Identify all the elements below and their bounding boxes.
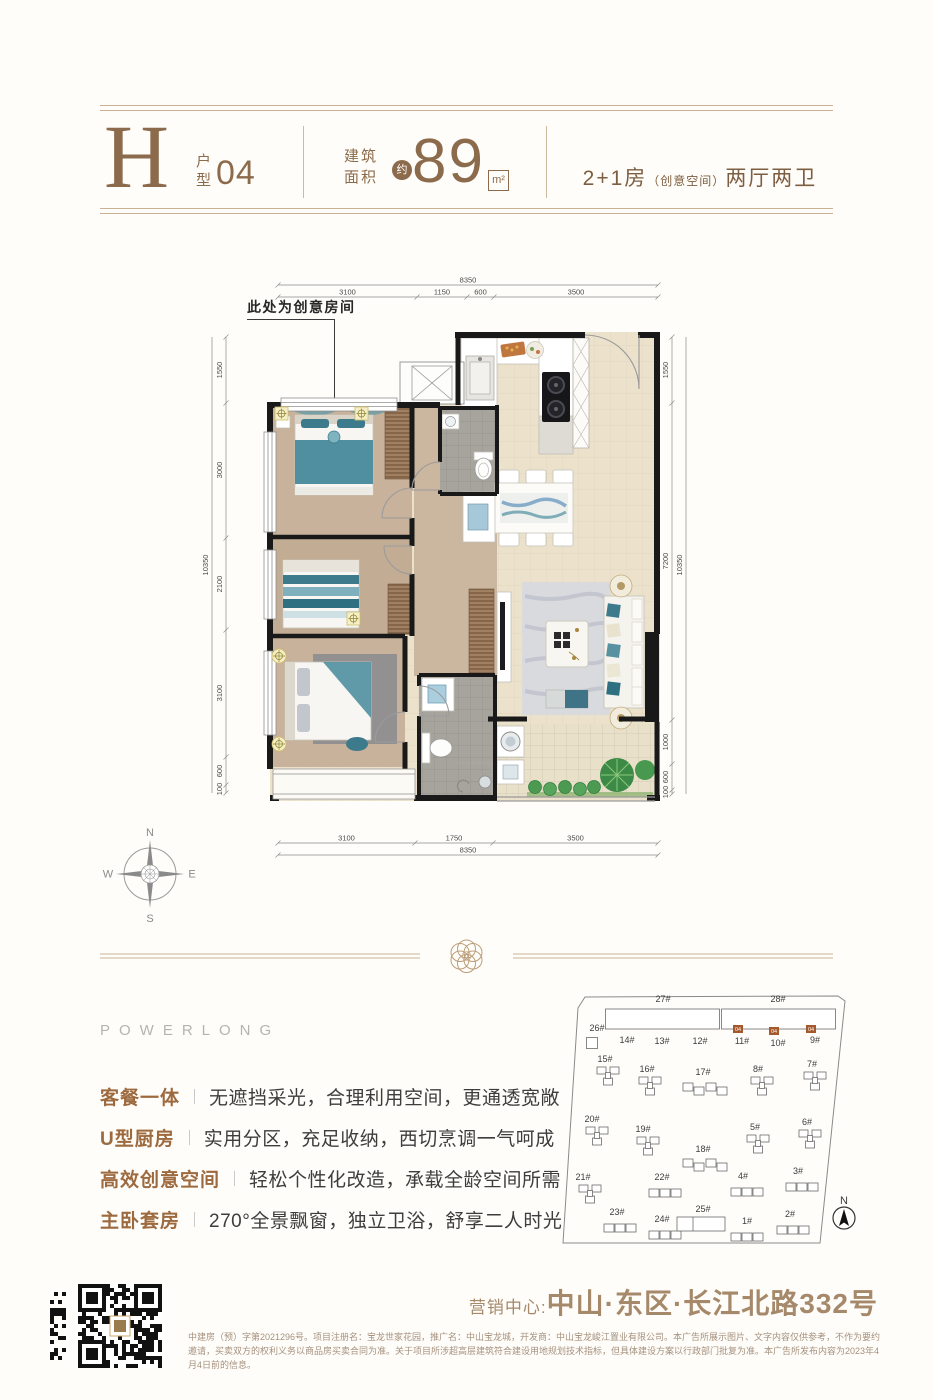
layout-paren: （创意空间） — [647, 174, 725, 188]
siteplan-building-label: 28# — [770, 994, 785, 1004]
siteplan-building-label: 8# — [753, 1064, 763, 1074]
creative-room-wardrobe — [385, 407, 410, 479]
svg-text:3100: 3100 — [339, 288, 356, 297]
siteplan-building — [751, 1077, 773, 1095]
siteplan-building-label: 7# — [807, 1059, 817, 1069]
svg-text:1000: 1000 — [661, 734, 670, 751]
svg-text:W: W — [103, 869, 114, 881]
svg-text:N: N — [840, 1195, 848, 1207]
feature-divider — [194, 1212, 195, 1227]
svg-text:1550: 1550 — [661, 362, 670, 379]
feature-list: 客餐一体 无遮挡采光，合理利用空间，更通透宽敞 U型厨房 实用分区，充足收纳，西… — [100, 1076, 562, 1240]
floorplan-drawing: 8350 3100 1150 600 3500 3100 1750 3500 8… — [195, 266, 765, 876]
svg-text:8350: 8350 — [460, 276, 477, 285]
ornament-divider-icon — [100, 936, 833, 980]
marketing-line: 营销中心: 中山·东区·长江北路332号 — [430, 1282, 878, 1322]
siteplan-building-label: 10# — [770, 1038, 785, 1048]
svg-text:1550: 1550 — [215, 362, 224, 379]
unit-type-stack-top: 户 — [196, 152, 212, 171]
siteplan-building — [683, 1159, 727, 1171]
area-label-bottom: 面积 — [344, 167, 378, 188]
siteplan-building — [777, 1226, 809, 1234]
svg-text:7200: 7200 — [661, 553, 670, 570]
siteplan-building-label: 6# — [802, 1117, 812, 1127]
layout-rooms: 2+1房 — [583, 167, 648, 190]
feature-desc: 270°全景飘窗，独立卫浴，舒享二人时光 — [209, 1206, 562, 1233]
svg-text:600: 600 — [474, 288, 487, 297]
feature-desc: 轻松个性化改造，承载全龄空间所需 — [249, 1165, 561, 1192]
header-rule-top — [100, 105, 833, 111]
svg-text:1750: 1750 — [446, 834, 463, 843]
siteplan-building-label: 23# — [609, 1207, 624, 1217]
feature-desc: 无遮挡采光，合理利用空间，更通透宽敞 — [209, 1083, 560, 1110]
svg-text:04: 04 — [735, 1027, 741, 1033]
svg-text:100: 100 — [661, 786, 670, 799]
area-value: 89 — [412, 126, 485, 197]
siteplan-building-label: 14# — [619, 1035, 634, 1045]
siteplan-building-label: 18# — [695, 1144, 710, 1154]
svg-text:10350: 10350 — [201, 555, 210, 576]
siteplan-building-label: 19# — [635, 1124, 650, 1134]
unit-type-stack: 户 型 — [196, 152, 212, 190]
siteplan-building — [649, 1189, 681, 1197]
disclaimer-text: 中建房（预）字第2021296号。项目注册名：宝龙世家花园，推广名：中山宝龙城，… — [188, 1331, 883, 1373]
north-arrow-icon: N — [833, 1195, 855, 1229]
siteplan-building-label: 1# — [742, 1216, 752, 1226]
svg-text:10350: 10350 — [675, 555, 684, 576]
siteplan-building — [649, 1231, 681, 1239]
svg-text:3100: 3100 — [215, 685, 224, 702]
tv-cabinet — [497, 592, 511, 682]
header-divider-2 — [546, 126, 547, 198]
siteplan-building-label: 13# — [654, 1036, 669, 1046]
svg-text:E: E — [188, 869, 195, 881]
area-label-top: 建筑 — [344, 146, 378, 167]
siteplan-building — [683, 1083, 727, 1095]
svg-text:3500: 3500 — [567, 834, 584, 843]
svg-text:2100: 2100 — [215, 576, 224, 593]
unit-type-letter: H — [104, 116, 169, 200]
dining-sideboard — [463, 492, 495, 542]
floorplan-poster-page: H 户 型 04 建筑 面积 约 89 m² 2+1房（创意空间）两厅两卫 此处… — [0, 0, 933, 1400]
siteplan-building — [731, 1188, 763, 1196]
layout-description: 2+1房（创意空间）两厅两卫 — [560, 162, 840, 192]
qr-code — [78, 1284, 162, 1368]
siteplan-building-label: 25# — [695, 1204, 710, 1214]
siteplan-building — [606, 1009, 720, 1029]
svg-text:3100: 3100 — [338, 834, 355, 843]
svg-text:600: 600 — [215, 765, 224, 778]
siteplan-map: 27#28#26#14#13#12#11#10#9#15#16#17#8#7#2… — [545, 985, 880, 1260]
feature-label: 主卧套房 — [100, 1206, 180, 1233]
svg-text:S: S — [146, 913, 153, 925]
feature-divider — [194, 1089, 195, 1104]
svg-text:N: N — [146, 827, 154, 839]
siteplan-building-label: 27# — [655, 994, 670, 1004]
hallway-wardrobe — [469, 589, 494, 675]
coffee-table — [546, 621, 588, 667]
siteplan-building-label: 5# — [750, 1122, 760, 1132]
dining-set — [495, 470, 573, 546]
brand-logo-text: POWERLONG — [100, 1022, 280, 1039]
feature-label: U型厨房 — [100, 1124, 175, 1151]
siteplan-building-label: 26# — [589, 1023, 604, 1033]
feature-label: 高效创意空间 — [100, 1165, 220, 1192]
area-label: 建筑 面积 — [344, 146, 378, 188]
living-bench — [546, 690, 588, 708]
marketing-address: 中山·东区·长江北路332号 — [547, 1282, 878, 1322]
washing-machine — [497, 726, 524, 757]
siteplan-building-label: 21# — [575, 1172, 590, 1182]
sofa — [604, 575, 644, 729]
siteplan-building — [731, 1233, 763, 1241]
siteplan-building-label: 2# — [785, 1209, 795, 1219]
siteplan-building — [597, 1067, 619, 1085]
siteplan-building — [579, 1185, 601, 1203]
marketing-center-label: 营销中心: — [469, 1293, 547, 1318]
elevator-shaft — [400, 362, 464, 404]
siteplan-building-label: 24# — [654, 1214, 669, 1224]
svg-text:8350: 8350 — [460, 846, 477, 855]
feature-row: 主卧套房 270°全景飘窗，独立卫浴，舒享二人时光 — [100, 1199, 562, 1240]
siteplan-building — [637, 1137, 659, 1155]
siteplan-building-label: 16# — [639, 1064, 654, 1074]
siteplan-building-label: 9# — [810, 1035, 820, 1045]
bedroom2-wardrobe — [388, 584, 412, 634]
unit-type-stack-bottom: 型 — [196, 171, 212, 190]
laundry-sink — [497, 760, 524, 784]
header-rule-bottom — [100, 208, 833, 214]
siteplan-building — [639, 1077, 661, 1095]
feature-row: 客餐一体 无遮挡采光，合理利用空间，更通透宽敞 — [100, 1076, 562, 1117]
unit-type-number: 04 — [216, 154, 256, 193]
svg-text:3500: 3500 — [568, 288, 585, 297]
svg-text:600: 600 — [661, 771, 670, 784]
feature-desc: 实用分区，充足收纳，西切烹调一气呵成 — [204, 1124, 555, 1151]
area-approx-badge: 约 — [392, 160, 412, 180]
siteplan-building — [587, 1038, 598, 1049]
siteplan-building — [586, 1127, 608, 1145]
area-unit: m² — [488, 170, 509, 191]
qr-code-partial — [50, 1292, 66, 1360]
header-divider-1 — [303, 126, 304, 198]
feature-divider — [234, 1171, 235, 1186]
svg-text:04: 04 — [771, 1029, 777, 1035]
siteplan-building — [747, 1135, 769, 1153]
svg-text:04: 04 — [808, 1027, 814, 1033]
compass-icon: N E S W — [100, 826, 200, 926]
siteplan-building — [799, 1130, 821, 1148]
feature-divider — [189, 1130, 190, 1145]
siteplan-building-label: 20# — [584, 1114, 599, 1124]
siteplan-building — [804, 1072, 826, 1090]
layout-halls: 两厅两卫 — [725, 167, 817, 190]
siteplan-buildings: 27#28#26#14#13#12#11#10#9#15#16#17#8#7#2… — [575, 994, 835, 1241]
siteplan-building — [604, 1224, 636, 1232]
siteplan-building-label: 15# — [597, 1054, 612, 1064]
siteplan-building-label: 17# — [695, 1067, 710, 1077]
feature-label: 客餐一体 — [100, 1083, 180, 1110]
svg-text:3000: 3000 — [215, 462, 224, 479]
siteplan-building-label: 4# — [738, 1171, 748, 1181]
siteplan-building — [677, 1217, 725, 1231]
kitchen-tall-cabinet — [573, 338, 589, 448]
siteplan-building — [786, 1183, 818, 1191]
siteplan-building-label: 12# — [692, 1036, 707, 1046]
master-bed — [285, 662, 371, 751]
siteplan-building-label: 22# — [654, 1172, 669, 1182]
siteplan-building-label: 11# — [735, 1036, 749, 1046]
feature-row: U型厨房 实用分区，充足收纳，西切烹调一气呵成 — [100, 1117, 562, 1158]
siteplan-building-label: 3# — [793, 1166, 803, 1176]
svg-text:1150: 1150 — [434, 288, 450, 297]
feature-row: 高效创意空间 轻松个性化改造，承载全龄空间所需 — [100, 1158, 562, 1199]
svg-text:100: 100 — [215, 783, 224, 796]
